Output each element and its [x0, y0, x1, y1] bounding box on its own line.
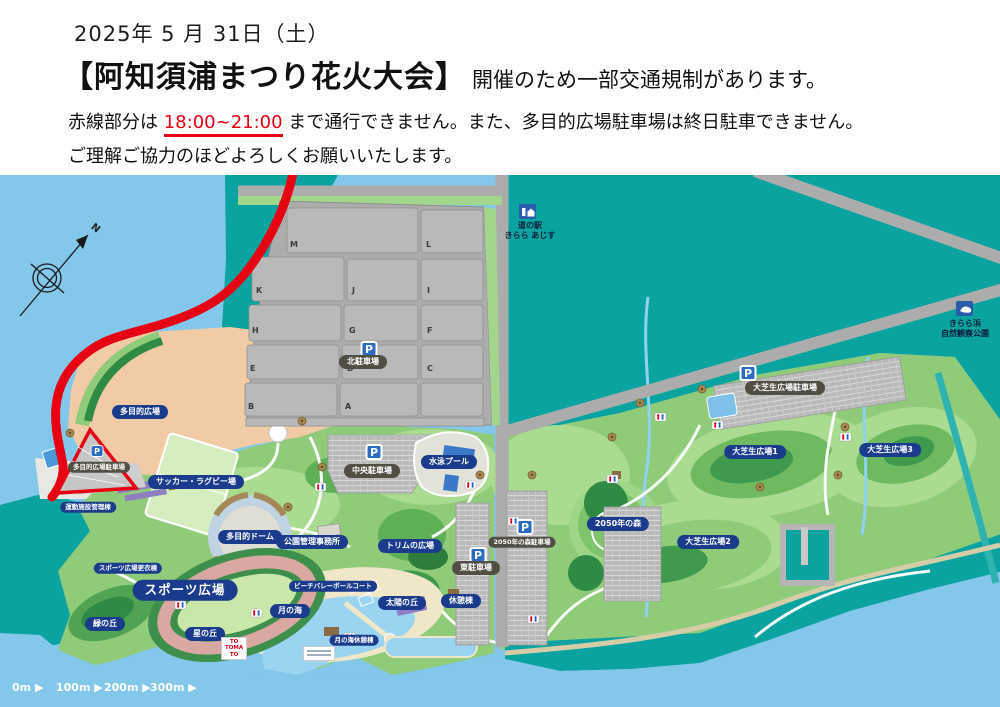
- scale-100m: 100m ▶: [56, 681, 103, 694]
- label-kyukei: 休憩棟: [441, 594, 481, 608]
- lot-section-j: J: [352, 287, 355, 295]
- lot-section-i: I: [427, 287, 430, 295]
- marina: [783, 527, 832, 583]
- parking-icon-mori2050: P: [517, 519, 534, 535]
- lawn-lot-pond: [706, 393, 737, 419]
- event-title: 【阿知須浦まつり花火大会】: [63, 60, 466, 95]
- label-pool: 水泳プール: [421, 455, 477, 469]
- thanks-notice: ご理解ご協力のほどよろしくお願いいたします。: [68, 142, 462, 168]
- lot-section-e: E: [250, 365, 255, 373]
- parking-icon-tamokuteki: P: [91, 445, 104, 457]
- label-central-parking: 中央駐車場: [344, 464, 400, 478]
- michinoeki-icon: [519, 204, 536, 219]
- label-mori2050: 2050年の森: [587, 517, 649, 531]
- label-dome: 多目的ドーム: [218, 530, 282, 544]
- tomato-sign: TO TOMA TO: [221, 637, 247, 660]
- scale-200m: 200m ▶: [104, 681, 151, 694]
- label-tsuki-umi: 月の海: [270, 604, 310, 618]
- label-lawn1: 大芝生広場1: [724, 445, 786, 459]
- label-lawn3: 大芝生広場3: [859, 443, 921, 457]
- traffic-notice-flyer: 2025年 5 月 31日（土） 【阿知須浦まつり花火大会】開催のため一部交通規…: [0, 0, 1000, 707]
- lot-section-a: A: [345, 403, 351, 411]
- lot-section-c: C: [427, 365, 433, 373]
- label-sports-kigae: スポーツ広場更衣棟: [94, 563, 162, 574]
- scale-300m: 300m ▶: [150, 681, 197, 694]
- lot-section-g: G: [349, 327, 356, 335]
- label-koen-jimusho: 公園管理事務所: [276, 535, 348, 549]
- lot-section-l: L: [426, 241, 431, 249]
- nature-park-line2: 自然観察公園: [941, 329, 989, 339]
- lot-section-k: K: [256, 287, 262, 295]
- small-sign: [303, 646, 335, 661]
- label-lawn-parking: 大芝生広場駐車場: [745, 381, 825, 395]
- header: 2025年 5 月 31日（土） 【阿知須浦まつり花火大会】開催のため一部交通規…: [0, 0, 1000, 175]
- event-date: 2025年 5 月 31日（土）: [74, 18, 330, 48]
- parking-icon-central: P: [366, 444, 383, 460]
- lot-section-m: M: [290, 241, 298, 249]
- notice-suffix: まで通行できません。また、多目的広場駐車場は終日駐車できません。: [283, 112, 864, 133]
- park-map: N M L K J I H G F E D C B A P P P P P P …: [0, 175, 1000, 707]
- label-tamokuteki-parking: 多目的広場駐車場: [68, 462, 130, 473]
- event-title-suffix: 開催のため一部交通規制があります。: [472, 68, 827, 92]
- title-line: 【阿知須浦まつり花火大会】開催のため一部交通規制があります。: [63, 52, 827, 96]
- restricted-time: 18:00~21:00: [164, 112, 283, 137]
- label-mori2050-parking: 2050年の森駐車場: [488, 537, 555, 548]
- label-midori-oka: 緑の丘: [85, 617, 125, 631]
- map-graphic: [0, 175, 1000, 707]
- nature-park-label: きらら浜 自然観察公園: [941, 319, 989, 340]
- michinoeki-line2: きらら あじす: [505, 231, 556, 241]
- label-lawn2: 大芝生広場2: [677, 535, 739, 549]
- scale-0m: 0m ▶: [12, 681, 43, 694]
- nature-park-icon: [956, 301, 973, 316]
- notice-prefix: 赤線部分は: [68, 112, 164, 133]
- lot-section-f: F: [427, 327, 432, 335]
- label-east-parking: 東駐車場: [452, 561, 500, 575]
- lot-section-h: H: [252, 327, 259, 335]
- michinoeki-line1: 道の駅: [505, 221, 556, 231]
- roundabout: [269, 424, 287, 442]
- label-trim: トリムの広場: [378, 539, 442, 553]
- label-tsuki-kyukei: 月の海休憩棟: [330, 635, 379, 646]
- label-undo-shisetsu: 運動施設管理棟: [60, 502, 116, 513]
- label-taiyo-oka: 太陽の丘: [378, 596, 426, 610]
- label-soccer-rugby: サッカー・ラグビー場: [148, 475, 244, 489]
- michinoeki-label: 道の駅 きらら あじす: [505, 221, 556, 242]
- label-north-parking: 北駐車場: [339, 355, 387, 369]
- nature-park-line1: きらら浜: [941, 319, 989, 329]
- restriction-notice: 赤線部分は 18:00~21:00 まで通行できません。また、多目的広場駐車場は…: [68, 108, 863, 134]
- label-sports-hiroba: スポーツ広場: [133, 580, 238, 601]
- parking-icon-lawn: P: [740, 365, 757, 381]
- label-tamokuteki-hiroba: 多目的広場: [112, 405, 168, 419]
- label-beach-volley: ビーチバレーボールコート: [289, 581, 377, 592]
- lot-section-b: B: [248, 403, 254, 411]
- label-hoshi-oka: 星の丘: [185, 627, 225, 641]
